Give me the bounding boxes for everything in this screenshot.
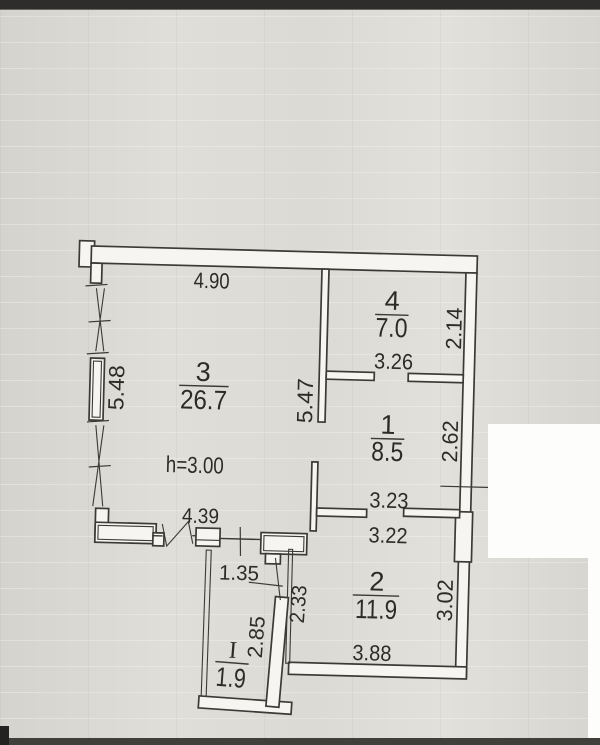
room4-area: 7.0 <box>375 312 408 343</box>
white-patch-lower <box>488 508 589 558</box>
scan-corner-artifact <box>0 726 9 745</box>
room3-window-step <box>153 533 164 546</box>
dim-room4-width: 3.26 <box>374 348 414 374</box>
dim-room2-bottom-width: 3.88 <box>352 640 392 666</box>
wall-room4-room1-right <box>408 373 463 382</box>
partition-room3-lower <box>310 462 318 531</box>
ceiling-height-label: h=3.00 <box>166 451 225 479</box>
left-wall-tick-1 <box>85 284 107 287</box>
dim-room1-width: 3.23 <box>369 487 409 513</box>
room1-area: 8.5 <box>371 436 404 467</box>
wall-room4-room1-left <box>326 371 374 380</box>
room3-bottom-dim-tick <box>239 527 241 556</box>
dim-room3-bottom-width: 4.39 <box>182 504 220 528</box>
scanned-floor-plan-page: 4.90 5.48 5.47 4.39 3.26 2.14 3.23 2.62 … <box>0 0 600 745</box>
balcony-door-leaf <box>266 597 289 708</box>
balcony-left-wall <box>201 550 211 702</box>
dim-room1-height: 2.62 <box>437 420 463 463</box>
left-wall-tick-3 <box>87 352 109 355</box>
partition-room3-upper <box>318 269 329 422</box>
room3-area: 26.7 <box>180 384 228 415</box>
dim-left-height: 5.48 <box>103 365 129 411</box>
dim-room4-height: 2.14 <box>441 307 467 350</box>
plan-group: 4.90 5.48 5.47 4.39 3.26 2.14 3.23 2.62 … <box>67 241 501 720</box>
balcony-number: I <box>228 638 238 665</box>
left-wall-window <box>89 358 105 420</box>
dim-balcony-right-height: 2.33 <box>286 584 312 624</box>
room3-column-inner-line <box>196 540 220 541</box>
room4-number: 4 <box>384 286 400 316</box>
wall-room1-room2-left <box>317 508 367 517</box>
left-wall-sash-icon <box>95 288 106 351</box>
room1-number: 1 <box>380 410 396 440</box>
room3-column <box>196 528 220 547</box>
left-wall-top-corner <box>91 263 103 283</box>
dim-room2-upper-width: 3.22 <box>368 522 408 548</box>
dim-room2-height: 3.02 <box>432 579 458 622</box>
white-patch-edge-strip <box>588 424 600 745</box>
floor-plan: 4.90 5.48 5.47 4.39 3.26 2.14 3.23 2.62 … <box>0 0 600 745</box>
balcony-door-hinge-box <box>265 554 280 564</box>
top-wall <box>91 246 477 273</box>
room2-number: 2 <box>369 566 385 596</box>
scan-bottom-edge <box>6 738 600 745</box>
dim-balcony-top-width: 1.35 <box>219 561 260 585</box>
dim-room3-inner-height: 5.47 <box>292 378 318 424</box>
wall-room1-room2-right <box>404 508 460 517</box>
room2-area: 11.9 <box>355 594 398 625</box>
dim-top-width: 4.90 <box>193 268 230 294</box>
white-patch-upper <box>488 424 600 509</box>
scan-top-edge <box>0 0 600 10</box>
room3-number: 3 <box>195 357 211 387</box>
balcony-area: 1.9 <box>215 662 247 694</box>
dim-balcony-inner-height: 2.85 <box>244 615 270 659</box>
right-wall-window-box <box>454 512 472 562</box>
